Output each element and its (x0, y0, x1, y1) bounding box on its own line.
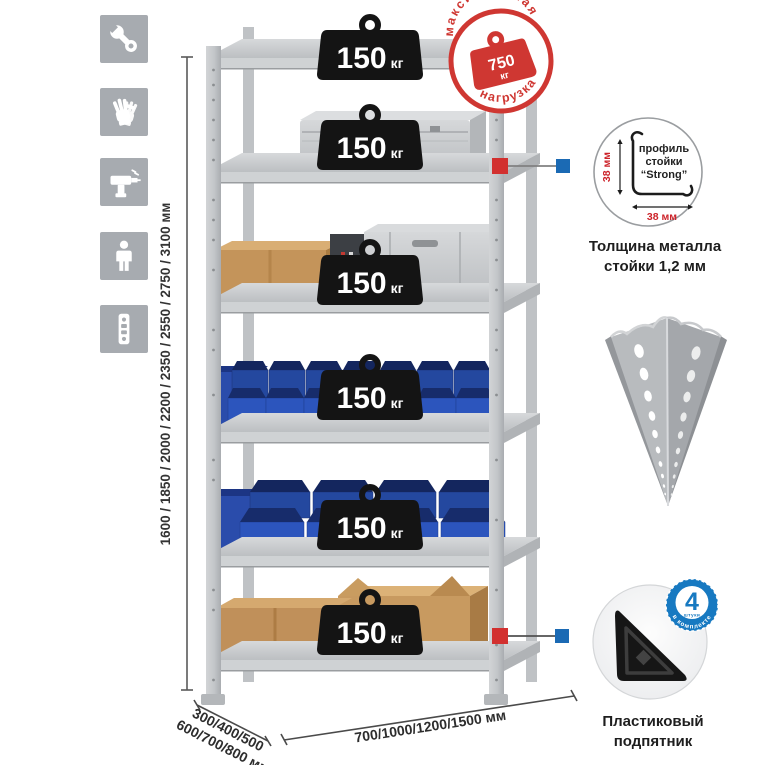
gloves-icon (106, 94, 142, 130)
profile-dim-horizontal: 38 мм (647, 211, 677, 223)
corner-post-image (597, 306, 742, 521)
drill-icon (106, 164, 142, 200)
profile-label-1: профиль (639, 143, 689, 155)
height-dimension-label: 1600 / 1850 / 2000 / 2200 / 2350 / 2550 … (158, 203, 173, 546)
wrench-icon (106, 21, 142, 57)
marker-red-top (492, 158, 508, 174)
profile-dim-vertical: 38 мм (601, 152, 613, 182)
height-dimension: 1600 / 1850 / 2000 / 2200 / 2350 / 2550 … (158, 57, 193, 690)
legend-tile-person (100, 232, 148, 280)
foot-caption-line1: Пластиковый (568, 712, 738, 732)
profile-label-3: “Strong” (641, 169, 687, 181)
marker-blue-top (556, 159, 570, 173)
set-count-badge: 4 штуки в комплекте (666, 579, 718, 631)
product-infographic: 1600 / 1850 / 2000 / 2200 / 2350 / 2550 … (0, 0, 765, 765)
person-icon (106, 238, 142, 274)
legend-tile-profile (100, 305, 148, 353)
foot-caption: Пластиковый подпятник (568, 712, 738, 753)
max-load-stamp: максимальная нагрузка 750 кг (432, 0, 563, 122)
profile-detail: 38 мм 38 мм профиль стойки “Strong” (590, 114, 710, 234)
width-dimension: 700/1000/1200/1500 мм (281, 690, 577, 745)
load-badge-1: 150кг (317, 17, 423, 80)
width-label: 700/1000/1200/1500 мм (353, 707, 507, 746)
foot-detail: 4 штуки в комплекте (588, 578, 728, 708)
profile-caption-line1: Толщина металла (570, 237, 740, 257)
marker-red-bottom (492, 628, 508, 644)
perforated-profile-icon (106, 311, 142, 347)
foot-caption-line2: подпятник (568, 732, 738, 752)
badge-unit: штуки (684, 614, 701, 619)
profile-label-2: стойки (645, 156, 682, 168)
profile-caption-line2: стойки 1,2 мм (570, 257, 740, 277)
marker-blue-bottom (555, 629, 569, 643)
legend-tile-assembly (100, 15, 148, 63)
legend-tile-gloves (100, 88, 148, 136)
depth-dimension: 300/400/500 600/700/800 мм (174, 700, 273, 765)
profile-caption: Толщина металла стойки 1,2 мм (570, 237, 740, 278)
badge-count: 4 (685, 588, 699, 616)
legend-tile-drill (100, 158, 148, 206)
